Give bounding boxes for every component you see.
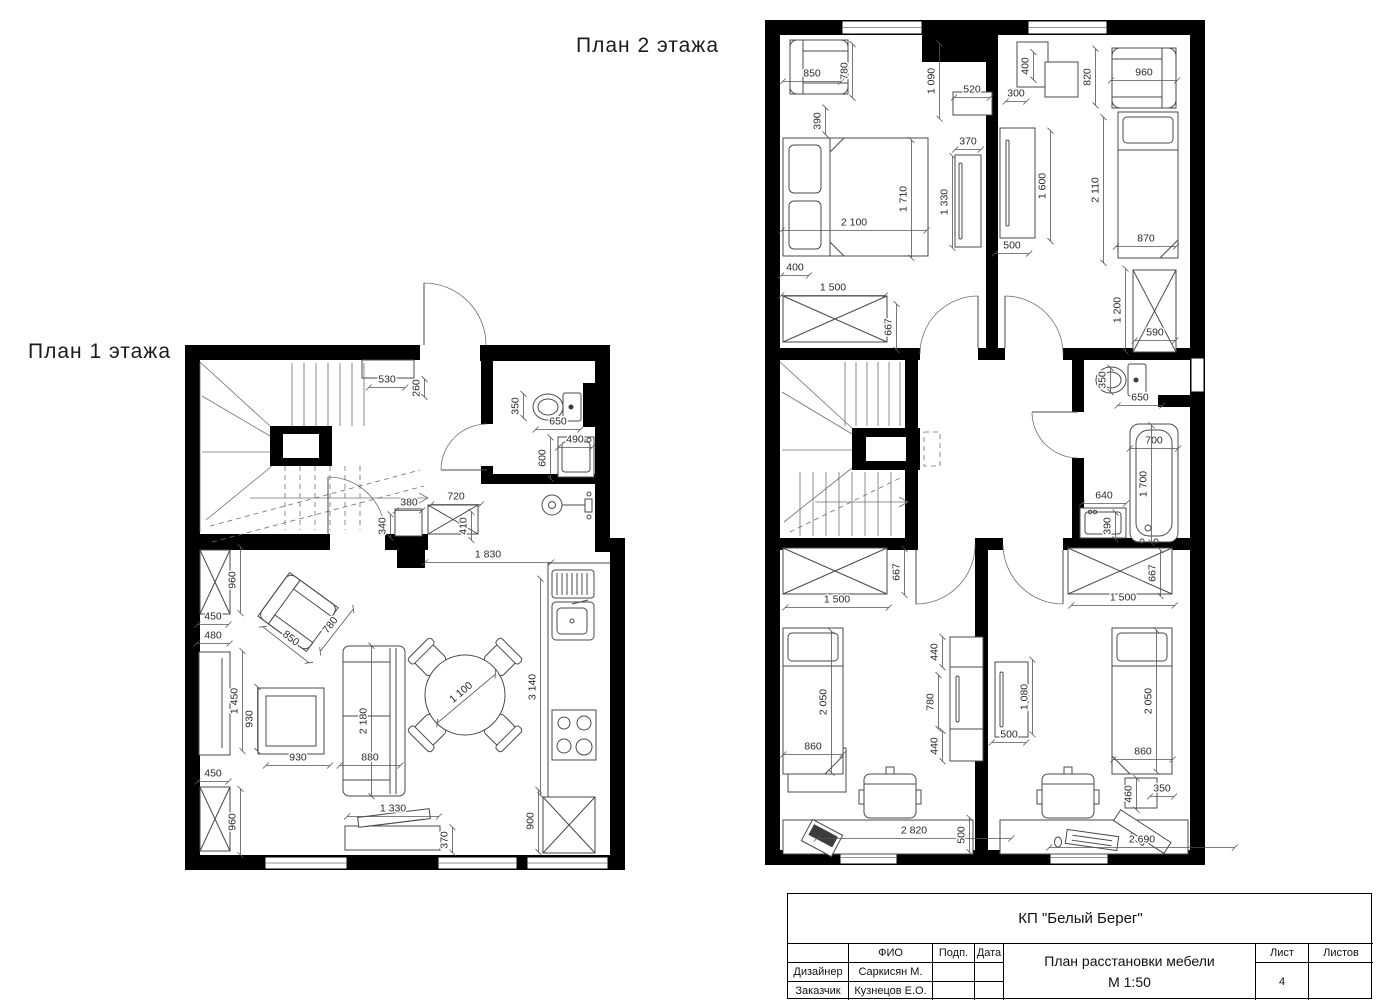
svg-text:340: 340 [377,517,389,535]
svg-text:440: 440 [929,737,941,755]
stove [552,710,596,760]
dimension-label: 440 [929,728,946,764]
dimension-label: 780 [925,672,942,732]
dimension-label: 260 [411,376,428,400]
svg-text:960: 960 [227,571,239,589]
dimension-label: 1 330 [939,153,956,251]
sofa [343,646,405,796]
dimension-label: 1 200 [1112,266,1129,355]
svg-text:960: 960 [1135,67,1153,79]
desk [1045,62,1078,97]
dimension-label: 400 [778,262,812,279]
fio-header: ФИО [849,944,933,963]
svg-text:1 500: 1 500 [1110,592,1136,604]
dish-rack [552,570,594,598]
svg-text:650: 650 [1131,392,1149,404]
window [438,857,517,869]
dimension-label: 370 [952,136,984,153]
client-signature-cell [933,982,975,1000]
dimension-label: 370 [439,824,456,856]
svg-text:880: 880 [361,752,379,764]
svg-text:2 050: 2 050 [818,689,830,715]
wardrobe [200,550,230,614]
svg-text:260: 260 [411,379,423,397]
window [527,857,608,869]
svg-text:350: 350 [1153,783,1171,795]
svg-text:667: 667 [883,318,895,336]
designer-signature-cell [933,963,975,982]
dimension-label: 390 [812,105,829,138]
svg-text:3 140: 3 140 [527,674,539,700]
svg-text:2 690: 2 690 [1129,834,1155,846]
title-block: КП "Белый Берег" ФИО Подп. Дата План рас… [787,893,1372,999]
svg-text:480: 480 [204,630,222,642]
svg-text:500: 500 [1000,729,1018,741]
svg-text:520: 520 [963,84,981,96]
svg-text:530: 530 [378,374,396,386]
sliding-wardrobe [950,637,983,761]
dimension-label: 440 [929,634,946,670]
svg-text:1 090: 1 090 [926,68,938,94]
fridge [543,797,595,853]
tall-cabinet [955,155,981,247]
svg-text:2 820: 2 820 [901,825,927,837]
bathroom-door [441,424,487,470]
entrance-door [424,283,486,345]
dimension-label: 1 500 [782,594,892,611]
svg-text:1 200: 1 200 [1112,297,1124,323]
svg-text:667: 667 [1147,564,1159,582]
sheet-header: Лист [1256,944,1309,963]
svg-text:2 100: 2 100 [841,217,867,229]
bedroom3-door [916,545,975,604]
svg-text:2 050: 2 050 [1143,688,1155,714]
desk-chair [1037,767,1099,818]
kitchen [543,563,610,853]
client-name: Кузнецов Е.О. [849,982,933,1000]
dimension-label: 350 [510,391,527,421]
svg-text:400: 400 [786,262,804,274]
floor1-plan: 5302603506504906003807203404101 83096045… [185,283,625,870]
svg-text:860: 860 [804,741,822,753]
svg-text:390: 390 [1102,517,1114,535]
svg-text:930: 930 [289,752,307,764]
wardrobe [1133,270,1176,352]
role-header-cell [788,944,849,963]
document-scale: М 1:50 [1108,972,1151,993]
single-bed [783,628,846,792]
bedroom4-door [1003,545,1063,604]
project-name: КП "Белый Берег" [788,894,1373,944]
svg-text:500: 500 [1003,240,1021,252]
bedroom3-furniture [783,548,983,857]
bedroom1-door [920,296,978,354]
svg-text:1 330: 1 330 [939,189,951,215]
window [265,857,347,869]
dimension-label: 820 [1082,46,1099,109]
svg-text:350: 350 [510,397,522,415]
dimension-label: 650 [1115,392,1166,409]
svg-text:400: 400 [1020,57,1032,75]
svg-text:1 450: 1 450 [229,688,241,714]
svg-text:900: 900 [525,812,537,830]
svg-text:720: 720 [447,491,465,503]
svg-text:870: 870 [1137,233,1155,245]
svg-text:490: 490 [566,434,584,446]
wardrobe [783,296,887,342]
kitchen-sink [552,600,594,640]
svg-text:1 330: 1 330 [380,803,406,815]
dimension-label: 1 830 [422,549,554,566]
svg-text:850: 850 [803,68,821,80]
svg-text:820: 820 [1082,68,1094,86]
floor-plan-drawing: 5302603506504906003807203404101 83096045… [0,0,1377,1000]
dimension-label: 3 140 [527,576,544,799]
svg-text:2 110: 2 110 [1090,177,1102,203]
dimension-label: 530 [366,374,409,391]
tv-stand [345,826,440,850]
bathroom2-door [1032,412,1078,458]
svg-text:667: 667 [891,563,903,581]
svg-text:300: 300 [1007,88,1025,100]
dimension-label: 640 [1079,490,1129,507]
floor2-plan: 8507803901 0905203004008209602 1001 7101… [765,20,1238,865]
client-date-cell [975,982,1004,1000]
coffee-table [258,688,324,754]
bedroom2-door [1005,296,1063,354]
svg-text:1 500: 1 500 [824,594,850,606]
svg-text:780: 780 [839,62,851,80]
svg-text:380: 380 [400,497,418,509]
sheet-number: 4 [1256,963,1309,1000]
svg-text:1 830: 1 830 [475,549,501,561]
svg-text:650: 650 [549,416,567,428]
floor-plan-sheet: План 1 этажа План 2 этажа [0,0,1377,1000]
svg-text:2 180: 2 180 [358,708,370,734]
client-role: Заказчик [788,982,849,1000]
svg-text:410: 410 [458,517,470,535]
svg-text:1 600: 1 600 [1037,173,1049,199]
designer-name: Саркисян М. [849,963,933,982]
window [842,21,922,34]
svg-text:700: 700 [1145,435,1163,447]
dimension-label: 2 110 [1090,114,1107,266]
svg-text:460: 460 [1123,785,1135,803]
svg-text:860: 860 [1134,746,1152,758]
mouse [1055,837,1062,847]
sheets-total [1309,963,1373,1000]
shower [542,492,592,519]
desk-chair [859,767,921,818]
svg-text:930: 930 [244,710,256,728]
window [1028,21,1107,34]
bedroom1-furniture [783,40,992,342]
svg-text:590: 590 [1146,327,1164,339]
dimension-label: 300 [1003,88,1030,105]
tall-cabinet [1000,128,1035,238]
svg-text:450: 450 [204,768,222,780]
wardrobe [200,787,230,851]
dimension-label: 1 450 [229,648,246,754]
svg-text:370: 370 [959,136,977,148]
svg-text:350: 350 [1097,371,1109,389]
svg-text:780: 780 [925,693,937,711]
svg-text:640: 640 [1095,490,1113,502]
svg-text:600: 600 [537,449,549,467]
svg-text:1 080: 1 080 [1019,684,1031,710]
document-title-text: План расстановки мебели [1044,951,1214,972]
designer-date-cell [975,963,1004,982]
dimension-label: 1 600 [1037,128,1054,244]
svg-text:960: 960 [227,813,239,831]
wardrobe [783,548,887,594]
sheets-header: Листов [1309,944,1373,963]
floor2-bathroom [1080,364,1178,543]
hallway-wardrobe [428,505,478,534]
tall-cabinet [199,652,230,755]
dimension-label: 667 [891,546,908,598]
document-title: План расстановки мебели М 1:50 [1004,944,1256,1000]
signature-header: Подп. [933,944,975,963]
designer-role: Дизайнер [788,963,849,982]
dimension-label: 450 [194,768,231,785]
svg-text:1 700: 1 700 [1138,471,1150,497]
svg-text:450: 450 [204,611,222,623]
svg-text:500: 500 [956,826,968,844]
svg-text:390: 390 [812,112,824,130]
hallway-cabinet [395,509,422,536]
svg-text:1 500: 1 500 [820,282,846,294]
date-header: Дата [975,944,1004,963]
svg-text:370: 370 [439,831,451,849]
dimension-label: 900 [525,787,542,855]
svg-text:1 710: 1 710 [898,186,910,212]
svg-text:440: 440 [929,643,941,661]
